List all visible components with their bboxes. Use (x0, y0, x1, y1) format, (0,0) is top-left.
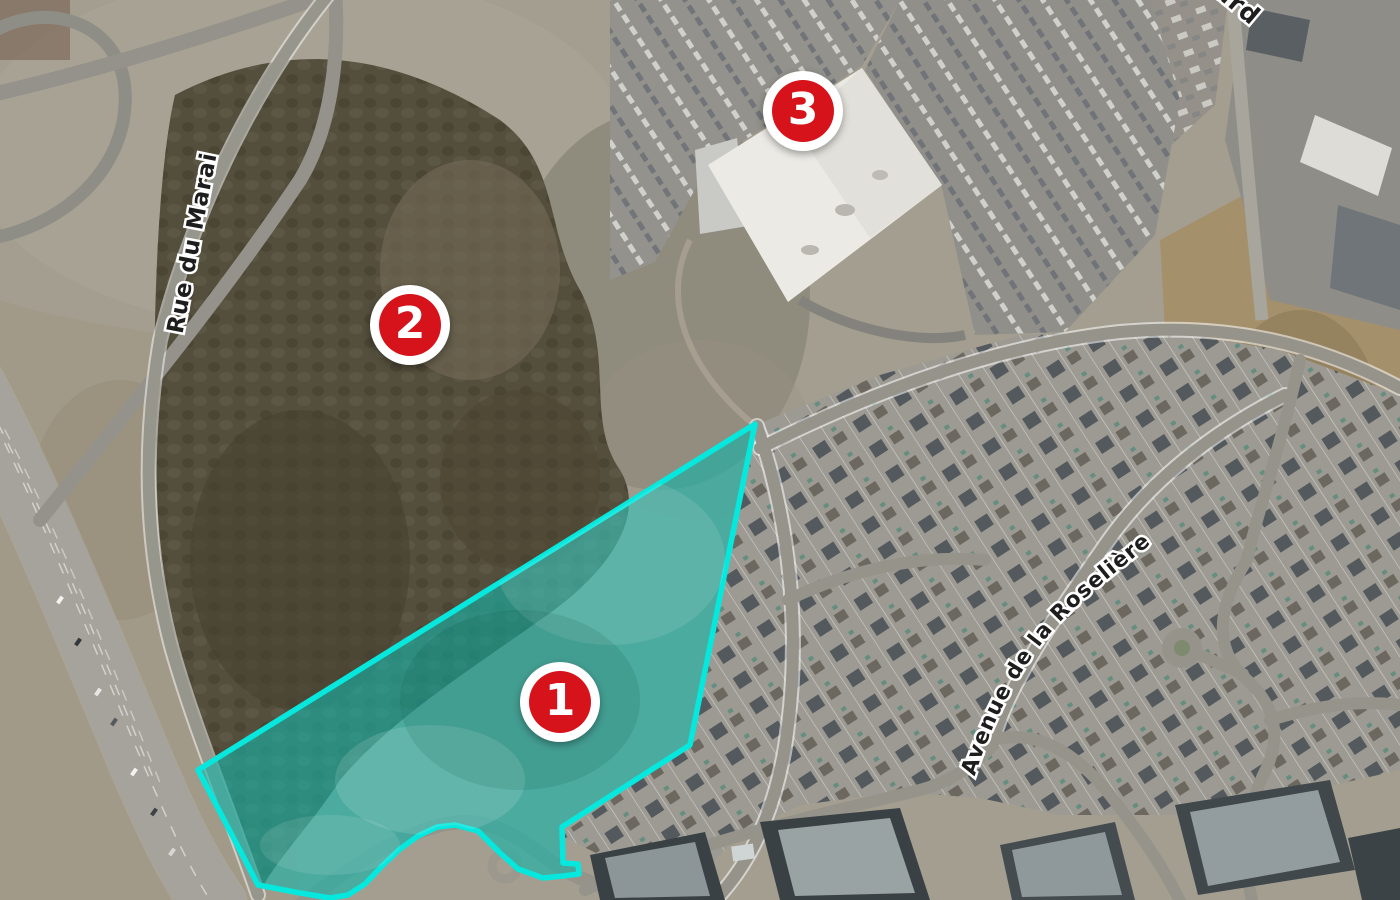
marker-2[interactable]: 2 (370, 285, 450, 365)
map-canvas: Rue du Marais Avenue de la Roselière ard… (0, 0, 1400, 900)
aerial-basemap: Rue du Marais Avenue de la Roselière ard (0, 0, 1400, 900)
marker-2-number: 2 (395, 302, 426, 346)
marker-1-badge: 1 (529, 671, 591, 733)
marker-3[interactable]: 3 (763, 71, 843, 151)
marker-3-number: 3 (788, 88, 819, 132)
marker-1-number: 1 (545, 679, 576, 723)
marker-2-badge: 2 (379, 294, 441, 356)
marker-1[interactable]: 1 (520, 662, 600, 742)
marker-3-badge: 3 (772, 80, 834, 142)
